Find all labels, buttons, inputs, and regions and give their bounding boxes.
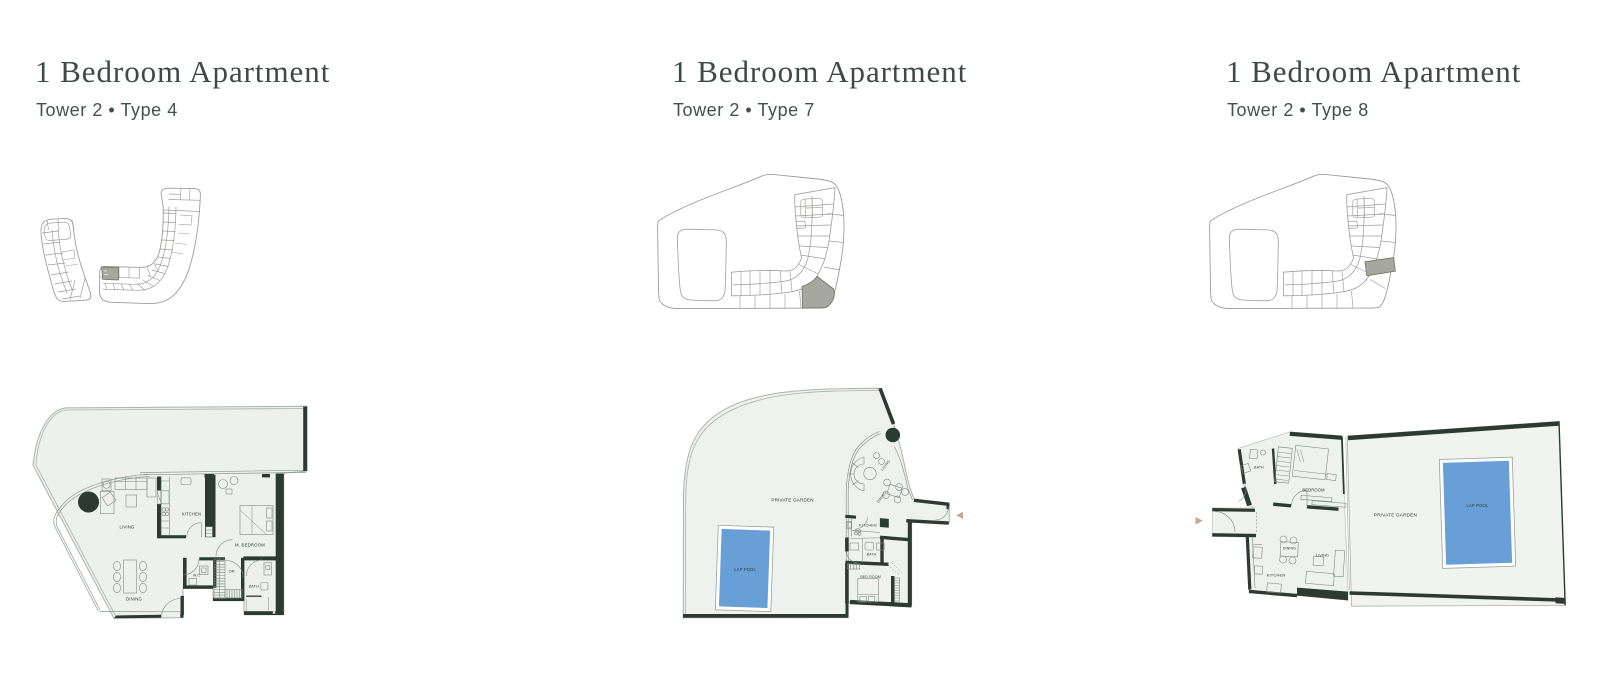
svg-text:M. BEDROOM: M. BEDROOM	[235, 543, 265, 548]
svg-text:PRIVATE GARDEN: PRIVATE GARDEN	[771, 497, 813, 502]
svg-text:LAP POOL: LAP POOL	[1466, 503, 1489, 508]
svg-text:BATH: BATH	[867, 553, 877, 557]
svg-text:KITCHEN: KITCHEN	[1267, 572, 1286, 577]
svg-text:PRIVATE GARDEN: PRIVATE GARDEN	[1374, 513, 1417, 518]
svg-text:BEDROOM: BEDROOM	[1302, 487, 1325, 492]
svg-text:W.C: W.C	[193, 574, 200, 578]
svg-text:BATH: BATH	[1254, 465, 1264, 469]
svg-text:LIVING: LIVING	[1316, 553, 1329, 557]
svg-text:DR.: DR.	[229, 570, 236, 574]
svg-text:LAP POOL: LAP POOL	[734, 567, 756, 572]
svg-text:BED ROOM: BED ROOM	[860, 575, 880, 579]
svg-text:BATH: BATH	[249, 585, 259, 589]
svg-text:DINING: DINING	[1283, 546, 1296, 550]
svg-text:LIVING: LIVING	[119, 525, 135, 530]
svg-text:DINING: DINING	[126, 597, 143, 602]
svg-text:KITCHEN: KITCHEN	[859, 523, 877, 527]
svg-text:KITCHEN: KITCHEN	[182, 512, 201, 517]
